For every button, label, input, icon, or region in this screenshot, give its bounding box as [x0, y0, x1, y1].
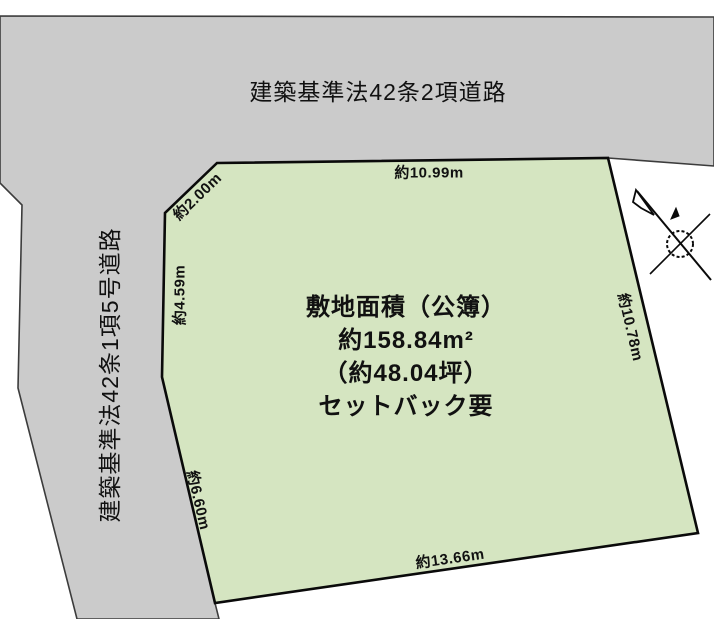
parcel-setback-note: セットバック要	[306, 390, 506, 423]
parcel-area-sqm: 約158.84m²	[306, 324, 506, 357]
measurement-top-edge: 約10.99m	[394, 162, 463, 183]
top-road-label: 建築基準法42条2項道路	[249, 73, 506, 107]
north-arrow-icon	[633, 190, 711, 280]
parcel-area-title: 敷地面積（公簿）	[306, 291, 506, 324]
left-road-label: 建築基準法42条1項5号道路	[91, 227, 125, 522]
measurement-left-edge: 約4.59m	[169, 265, 190, 326]
parcel-area-tsubo: （約48.04坪）	[306, 357, 506, 390]
parcel-info-block: 敷地面積（公簿） 約158.84m² （約48.04坪） セットバック要	[306, 291, 506, 423]
land-plot-diagram: 建築基準法42条2項道路 建築基準法42条1項5号道路 約10.99m 約2.0…	[0, 0, 714, 619]
